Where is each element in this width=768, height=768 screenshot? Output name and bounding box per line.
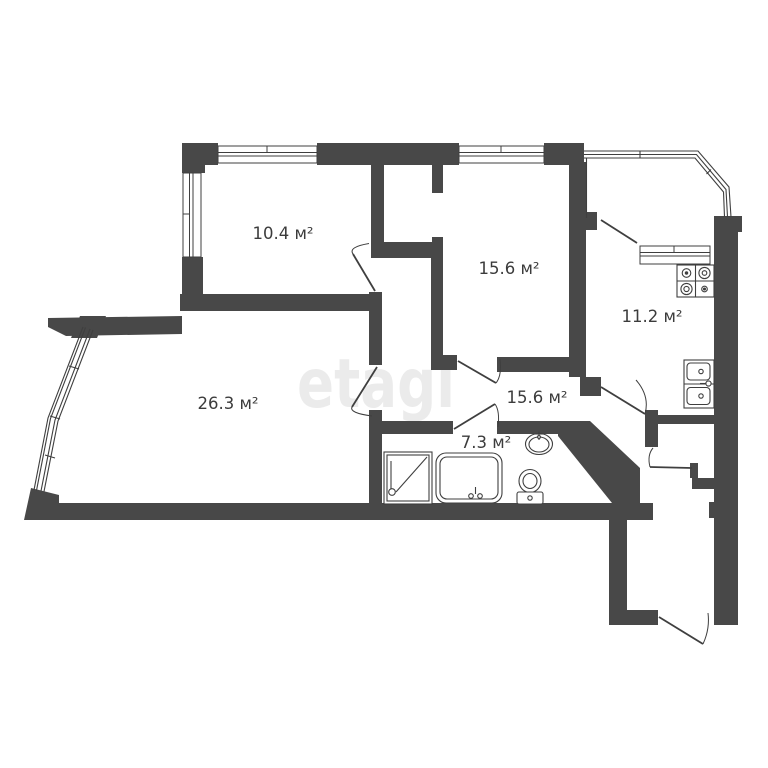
wall [544,143,584,165]
wall [317,143,459,165]
window-kitchen [640,246,710,264]
shower-icon [384,452,432,504]
wall [609,520,627,625]
wall [432,237,443,258]
room-label-7-3: 7.3 м² [461,433,512,452]
wall [497,357,577,372]
kitchen-sink-icon [684,360,714,408]
wall [714,216,738,625]
window-top-right [459,146,544,163]
wall [609,610,658,625]
wall [709,502,714,518]
wall [714,216,742,232]
stove-icon [677,265,714,297]
room-label-26-3: 26.3 м² [197,394,258,413]
room-label-15-6-top: 15.6 м² [478,259,539,278]
room-label-11-2: 11.2 м² [621,307,682,326]
wall [690,463,698,478]
wall [50,503,653,520]
toilet-icon [517,470,543,505]
room-label-10-4: 10.4 м² [252,224,313,243]
wall [692,478,714,489]
wall [369,292,382,365]
wall [431,257,443,357]
room-label-15-6-hall: 15.6 м² [506,388,567,407]
wall [371,421,453,434]
window-top-left [218,146,317,163]
wall [569,162,586,377]
wall [431,355,457,370]
wall [180,294,382,311]
wall [432,165,443,193]
wall [182,143,205,173]
window-left [183,173,201,257]
wall [371,165,384,242]
floorplan-drawing: etagi [0,0,768,768]
bathtub-icon [436,453,502,503]
wall [48,316,182,336]
wall [655,415,714,424]
floorplan-page: etagi [0,0,768,768]
wall [645,410,658,447]
wall [580,377,601,396]
